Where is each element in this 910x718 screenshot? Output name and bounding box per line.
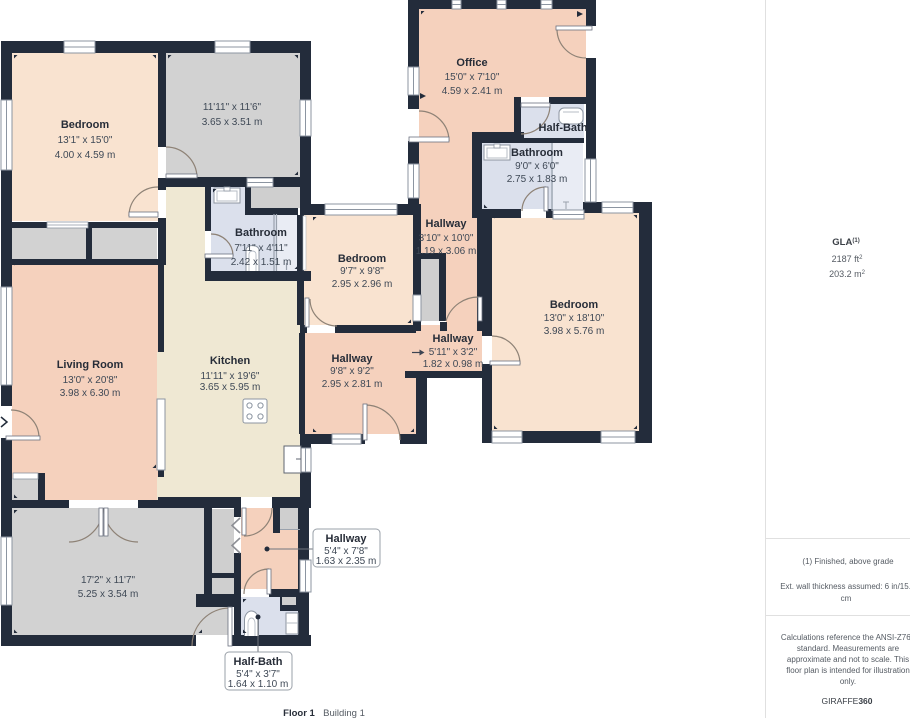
svg-text:(1) Finished, above grade: (1) Finished, above grade (802, 557, 894, 566)
svg-text:2.42 x 1.51 m: 2.42 x 1.51 m (231, 257, 292, 268)
svg-text:4.00 x 4.59 m: 4.00 x 4.59 m (55, 150, 116, 161)
svg-text:13'0" x 20'8": 13'0" x 20'8" (63, 375, 118, 386)
svg-text:standard. Measurements are: standard. Measurements are (797, 644, 900, 653)
svg-text:13'1" x 15'0": 13'1" x 15'0" (58, 135, 113, 146)
svg-text:11'11" x 19'6": 11'11" x 19'6" (201, 371, 260, 382)
svg-text:2.95 x 2.81 m: 2.95 x 2.81 m (322, 379, 383, 390)
svg-text:cm: cm (841, 594, 852, 603)
svg-text:Bathroom: Bathroom (511, 147, 563, 159)
svg-text:7'11" x 4'11": 7'11" x 4'11" (234, 243, 288, 254)
svg-text:3.65 x 5.95 m: 3.65 x 5.95 m (200, 382, 261, 393)
svg-text:floor plan is intended for ill: floor plan is intended for illustration (786, 666, 910, 675)
svg-text:Half-Bath: Half-Bath (234, 656, 283, 668)
svg-text:3.98 x 5.76 m: 3.98 x 5.76 m (544, 326, 605, 337)
svg-text:1.64 x 1.10 m: 1.64 x 1.10 m (228, 679, 289, 690)
svg-text:Hallway: Hallway (332, 353, 374, 365)
svg-text:Hallway: Hallway (326, 533, 368, 545)
svg-text:3.98 x 6.30 m: 3.98 x 6.30 m (60, 388, 121, 399)
svg-text:9'8" x 9'2": 9'8" x 9'2" (330, 366, 374, 377)
svg-text:GIRAFFE360: GIRAFFE360 (821, 696, 872, 706)
svg-text:13'0" x 18'10": 13'0" x 18'10" (544, 313, 605, 324)
svg-text:3'10" x 10'0": 3'10" x 10'0" (419, 233, 474, 244)
svg-text:Kitchen: Kitchen (210, 355, 251, 367)
svg-text:1.19 x 3.06 m: 1.19 x 3.06 m (416, 246, 477, 257)
svg-text:Living Room: Living Room (57, 359, 124, 371)
svg-text:4.59 x 2.41 m: 4.59 x 2.41 m (442, 86, 503, 97)
svg-text:Hallway: Hallway (426, 218, 468, 230)
svg-text:Floor 1: Floor 1 (283, 708, 315, 718)
svg-text:Hallway: Hallway (433, 333, 475, 345)
svg-text:Office: Office (456, 57, 487, 69)
svg-text:17'2" x 11'7": 17'2" x 11'7" (81, 575, 136, 586)
svg-text:1.63 x 2.35 m: 1.63 x 2.35 m (316, 556, 377, 567)
svg-text:5'11" x 3'2": 5'11" x 3'2" (429, 347, 478, 358)
svg-text:Half-Bath: Half-Bath (539, 122, 588, 134)
svg-text:5.25 x 3.54 m: 5.25 x 3.54 m (78, 589, 139, 600)
svg-text:Bedroom: Bedroom (61, 119, 110, 131)
svg-text:Bedroom: Bedroom (338, 253, 387, 265)
svg-text:15'0" x 7'10": 15'0" x 7'10" (445, 72, 500, 83)
svg-text:Bathroom: Bathroom (235, 227, 287, 239)
svg-text:Bedroom: Bedroom (550, 299, 599, 311)
svg-text:203.2 m2: 203.2 m2 (829, 269, 866, 279)
svg-text:only.: only. (840, 677, 856, 686)
svg-text:Calculations reference the ANS: Calculations reference the ANSI-Z765 (781, 633, 910, 642)
svg-text:3.65 x 3.51 m: 3.65 x 3.51 m (202, 117, 263, 128)
svg-text:approximate and not to scale.: approximate and not to scale. This (787, 655, 909, 664)
svg-text:9'0" x 6'0": 9'0" x 6'0" (515, 161, 559, 172)
svg-text:9'7" x 9'8": 9'7" x 9'8" (340, 266, 384, 277)
svg-text:2.75 x 1.83 m: 2.75 x 1.83 m (507, 174, 568, 185)
svg-text:Building 1: Building 1 (323, 708, 365, 718)
svg-text:11'11" x 11'6": 11'11" x 11'6" (203, 102, 262, 113)
svg-text:2187 ft2: 2187 ft2 (832, 254, 864, 264)
svg-text:2.95 x 2.96 m: 2.95 x 2.96 m (332, 279, 393, 290)
svg-text:Ext. wall thickness assumed: 6: Ext. wall thickness assumed: 6 in/15.24 (780, 582, 910, 591)
svg-text:1.82 x 0.98 m: 1.82 x 0.98 m (423, 359, 484, 370)
